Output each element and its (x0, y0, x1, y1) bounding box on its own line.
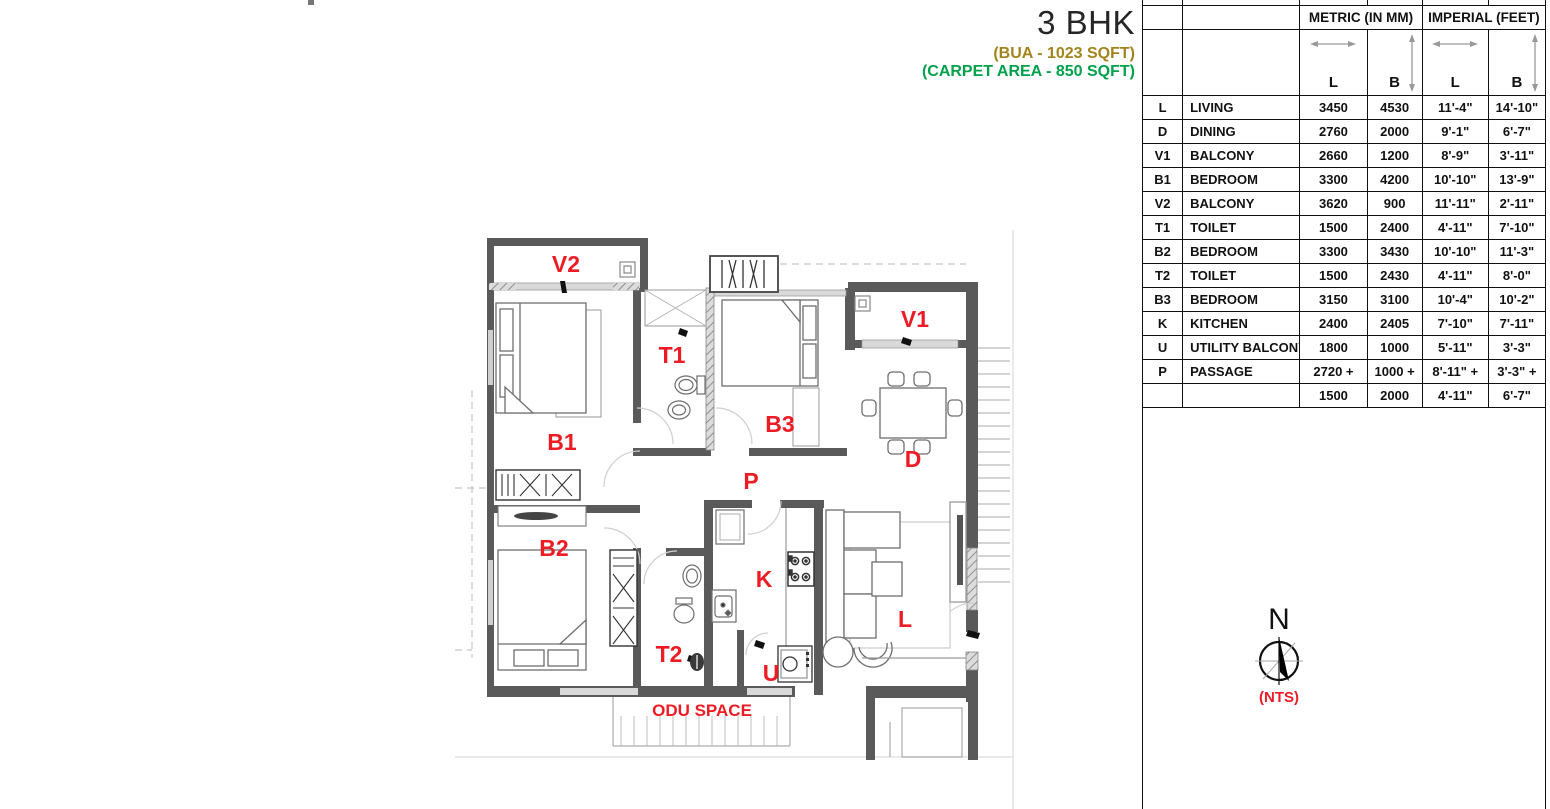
table-sub-header-row: L B L (1143, 30, 1546, 96)
table-cell (1183, 384, 1300, 408)
table-cell: L (1143, 96, 1183, 120)
table-cell: 7'-10" (1488, 216, 1545, 240)
table-row: V1BALCONY266012008'-9"3'-11" (1143, 144, 1546, 168)
header-imperial: IMPERIAL (FEET) (1422, 6, 1545, 30)
table-cell: V1 (1143, 144, 1183, 168)
header-name-blank (1183, 6, 1300, 30)
table-cell: DINING (1183, 120, 1300, 144)
washing-machine-icon (778, 646, 812, 682)
table-cell: 10'-10" (1422, 168, 1488, 192)
table-cell: 4'-11" (1422, 384, 1488, 408)
table-row: B1BEDROOM3300420010'-10"13'-9" (1143, 168, 1546, 192)
table-cell: 3'-11" (1488, 144, 1545, 168)
table-cell: K (1143, 312, 1183, 336)
dimensions-table: METRIC (IN MM) IMPERIAL (FEET) L (1142, 0, 1546, 408)
label-b3: B3 (765, 411, 794, 437)
table-cell: 2660 (1300, 144, 1367, 168)
stove-icon (788, 552, 814, 586)
table-cell: BALCONY (1183, 192, 1300, 216)
table-cell: 6'-7" (1488, 120, 1545, 144)
north-letter: N (1268, 603, 1290, 636)
table-cell: 4530 (1367, 96, 1422, 120)
adjacent-unit-fragment (890, 708, 962, 757)
dresser-shelf-b2 (498, 506, 586, 526)
table-cell: 3430 (1367, 240, 1422, 264)
horizontal-dimension-arrow-icon (1310, 37, 1356, 52)
label-l: L (898, 606, 912, 632)
label-b2: B2 (539, 535, 568, 561)
table-cell: B3 (1143, 288, 1183, 312)
table-cell: 13'-9" (1488, 168, 1545, 192)
dimensions-table-wrap: METRIC (IN MM) IMPERIAL (FEET) L (1142, 0, 1546, 408)
north-compass: N (NTS) (1247, 603, 1311, 705)
table-cell (1143, 384, 1183, 408)
table-row: T1TOILET150024004'-11"7'-10" (1143, 216, 1546, 240)
table-cell: 3150 (1300, 288, 1367, 312)
table-cell: 3450 (1300, 96, 1367, 120)
table-cell: 2'-11" (1488, 192, 1545, 216)
table-cell: 11'-4" (1422, 96, 1488, 120)
table-cell: 7'-10" (1422, 312, 1488, 336)
table-cell: 3100 (1367, 288, 1422, 312)
table-cell: 3300 (1300, 168, 1367, 192)
header-metric: METRIC (IN MM) (1300, 6, 1422, 30)
table-cell: 1800 (1300, 336, 1367, 360)
table-cell: 5'-11" (1422, 336, 1488, 360)
label-p: P (743, 468, 758, 494)
table-cell: 7'-11" (1488, 312, 1545, 336)
table-cell: 2400 (1300, 312, 1367, 336)
carpet-area-text: (CARPET AREA - 850 SQFT) (922, 64, 1135, 81)
table-cell: B1 (1143, 168, 1183, 192)
wardrobe-b1 (496, 470, 580, 500)
floor-plan-sheet: 3 BHK (BUA - 1023 SQFT) (CARPET AREA - 8… (0, 0, 1550, 809)
cut-off-mark (308, 0, 314, 5)
table-cell: 1500 (1300, 216, 1367, 240)
wardrobe-b2 (610, 550, 637, 646)
subheader-metric-l: L (1300, 30, 1367, 96)
table-cell: TOILET (1183, 264, 1300, 288)
table-cell: 2000 (1367, 120, 1422, 144)
table-row: 150020004'-11"6'-7" (1143, 384, 1546, 408)
table-row: UUTILITY BALCONY180010005'-11"3'-3" (1143, 336, 1546, 360)
unit-type-title: 3 BHK (922, 6, 1135, 41)
table-cell: TOILET (1183, 216, 1300, 240)
staircase (978, 348, 1010, 582)
table-cell: UTILITY BALCONY (1183, 336, 1300, 360)
label-k: K (756, 566, 773, 592)
table-cell: 6'-7" (1488, 384, 1545, 408)
table-cell: T1 (1143, 216, 1183, 240)
table-cell: BEDROOM (1183, 168, 1300, 192)
table-cell: 2430 (1367, 264, 1422, 288)
horizontal-dimension-arrow-icon (1432, 37, 1478, 52)
nts-note: (NTS) (1259, 689, 1299, 705)
header-code-blank (1143, 6, 1183, 30)
table-cell: 11'-11" (1422, 192, 1488, 216)
table-group-header-row: METRIC (IN MM) IMPERIAL (FEET) (1143, 6, 1546, 30)
table-cell: BALCONY (1183, 144, 1300, 168)
table-cell: BEDROOM (1183, 240, 1300, 264)
table-cell: V2 (1143, 192, 1183, 216)
table-cell: 10'-4" (1422, 288, 1488, 312)
table-cell: B2 (1143, 240, 1183, 264)
table-cell: 8'-9" (1422, 144, 1488, 168)
table-cell: 1000 (1367, 336, 1422, 360)
table-cell: 11'-3" (1488, 240, 1545, 264)
table-cell: T2 (1143, 264, 1183, 288)
table-cell: 10'-2" (1488, 288, 1545, 312)
vertical-dimension-arrow-icon (1407, 34, 1417, 91)
table-cell: 10'-10" (1422, 240, 1488, 264)
table-cell: 2760 (1300, 120, 1367, 144)
table-row: LLIVING3450453011'-4"14'-10" (1143, 96, 1546, 120)
table-cell: 4200 (1367, 168, 1422, 192)
floor-plan-drawing: V2 B1 T1 B3 V1 D P B2 T2 K U L ODU SPACE (455, 230, 1020, 809)
table-cell: 3'-3" + (1488, 360, 1545, 384)
table-cell: 9'-1" (1422, 120, 1488, 144)
label-v1: V1 (901, 306, 929, 332)
table-cell: 2720 + (1300, 360, 1367, 384)
table-cell: 8'-11" + (1422, 360, 1488, 384)
toilet-t1-fixtures (668, 376, 705, 419)
label-t2: T2 (656, 641, 683, 667)
table-cell: 8'-0" (1488, 264, 1545, 288)
duct-shaft (710, 256, 778, 292)
table-cell: 3620 (1300, 192, 1367, 216)
table-cell: 14'-10" (1488, 96, 1545, 120)
dining-table-set (862, 372, 962, 454)
table-cell: KITCHEN (1183, 312, 1300, 336)
table-cell: 2400 (1367, 216, 1422, 240)
table-row: B3BEDROOM3150310010'-4"10'-2" (1143, 288, 1546, 312)
table-cell: 3'-3" (1488, 336, 1545, 360)
table-row: T2TOILET150024304'-11"8'-0" (1143, 264, 1546, 288)
table-cell: 2000 (1367, 384, 1422, 408)
label-d: D (905, 446, 922, 472)
table-cell: 4'-11" (1422, 264, 1488, 288)
table-cell: 2405 (1367, 312, 1422, 336)
table-cell: 1500 (1300, 264, 1367, 288)
table-cell: 1000 + (1367, 360, 1422, 384)
label-b1: B1 (547, 429, 577, 455)
title-block: 3 BHK (BUA - 1023 SQFT) (CARPET AREA - 8… (922, 6, 1135, 81)
table-cell: 4'-11" (1422, 216, 1488, 240)
built-up-area-text: (BUA - 1023 SQFT) (922, 46, 1135, 63)
table-row: B2BEDROOM3300343010'-10"11'-3" (1143, 240, 1546, 264)
subheader-metric-b: B (1367, 30, 1422, 96)
subheader-imperial-b: B (1488, 30, 1545, 96)
lift-shaft (645, 290, 706, 326)
vertical-dimension-arrow-icon (1530, 34, 1540, 91)
label-odu-space: ODU SPACE (652, 701, 752, 720)
table-cell: 1200 (1367, 144, 1422, 168)
label-v2: V2 (552, 251, 580, 277)
table-cell: D (1143, 120, 1183, 144)
living-room-furniture (823, 502, 966, 667)
table-cell: LIVING (1183, 96, 1300, 120)
table-cell: BEDROOM (1183, 288, 1300, 312)
label-u: U (763, 660, 780, 686)
table-row: V2BALCONY362090011'-11"2'-11" (1143, 192, 1546, 216)
table-cell: 900 (1367, 192, 1422, 216)
table-row: PPASSAGE2720 +1000 +8'-11" +3'-3" + (1143, 360, 1546, 384)
table-row: DDINING276020009'-1"6'-7" (1143, 120, 1546, 144)
subheader-imperial-l: L (1422, 30, 1488, 96)
table-cell: PASSAGE (1183, 360, 1300, 384)
dims-table-body: LLIVING3450453011'-4"14'-10"DDINING27602… (1143, 96, 1546, 408)
label-t1: T1 (659, 342, 686, 368)
bed-b1 (496, 303, 601, 417)
bed-b2 (498, 550, 586, 670)
table-row: KKITCHEN240024057'-10"7'-11" (1143, 312, 1546, 336)
table-cell: 3300 (1300, 240, 1367, 264)
table-cell: P (1143, 360, 1183, 384)
table-cell: U (1143, 336, 1183, 360)
table-cell: 1500 (1300, 384, 1367, 408)
